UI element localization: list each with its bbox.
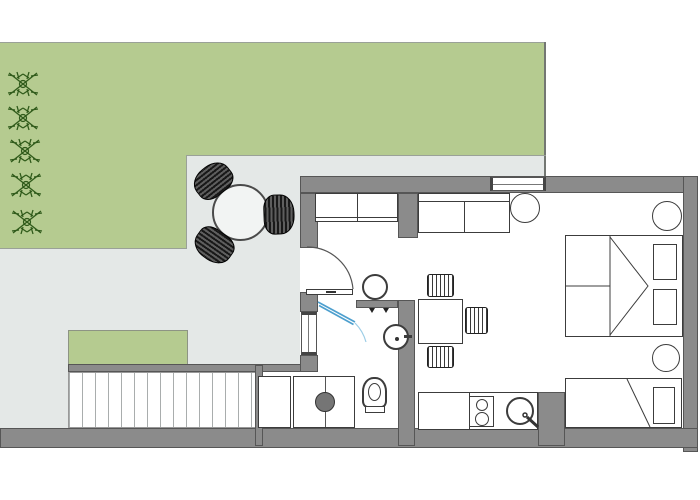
entrance-door-leaf [306,289,353,295]
door-handle [326,291,336,293]
entry-stool [362,274,388,300]
dining-chair-bottom [427,346,454,368]
window-left [301,312,317,355]
sofa [418,193,510,233]
basin-tap [404,335,412,338]
patio-lawn-line [187,155,546,156]
lawn-area-left [0,155,187,249]
planter-bed [68,330,188,364]
garden-chair-2 [263,194,295,235]
wall-kitchen-stub [538,392,565,446]
dining-table [418,299,463,344]
wall-bathroom-top [356,300,398,308]
wardrobe [315,193,398,222]
dining-chair-right [465,307,488,334]
double-bed-pillow-2 [653,289,677,325]
wall-left-lower [300,355,318,372]
dining-chair-top [427,274,454,297]
bathroom-cabinet [258,376,291,428]
toilet [362,377,387,408]
wall-right [683,176,698,452]
double-bed-pillow-1 [653,244,677,280]
planter-edge-wall [68,364,318,372]
wall-bottom [0,428,698,448]
wall-entry-column [398,193,418,238]
washer-drum [315,392,335,412]
burner-small [476,399,488,411]
single-bed-pillow [653,387,675,424]
window-top [490,177,546,191]
wall-left-mid [300,292,318,312]
bath-door-mark2 [383,308,389,313]
toilet-base [365,406,385,413]
side-table-3 [652,344,680,372]
bath-door-mark [369,308,375,313]
wall-bathroom-right [398,300,415,446]
deck [68,372,258,428]
washing-machine [293,376,355,428]
side-table-2 [652,201,682,231]
lawn-area-top [0,42,546,155]
kitchen-sink [506,397,534,425]
side-table-1 [510,193,540,223]
cooktop [469,396,494,427]
burner-large [475,412,489,426]
floor-plan: Studio apartment floor plan with garden,… [0,0,700,500]
